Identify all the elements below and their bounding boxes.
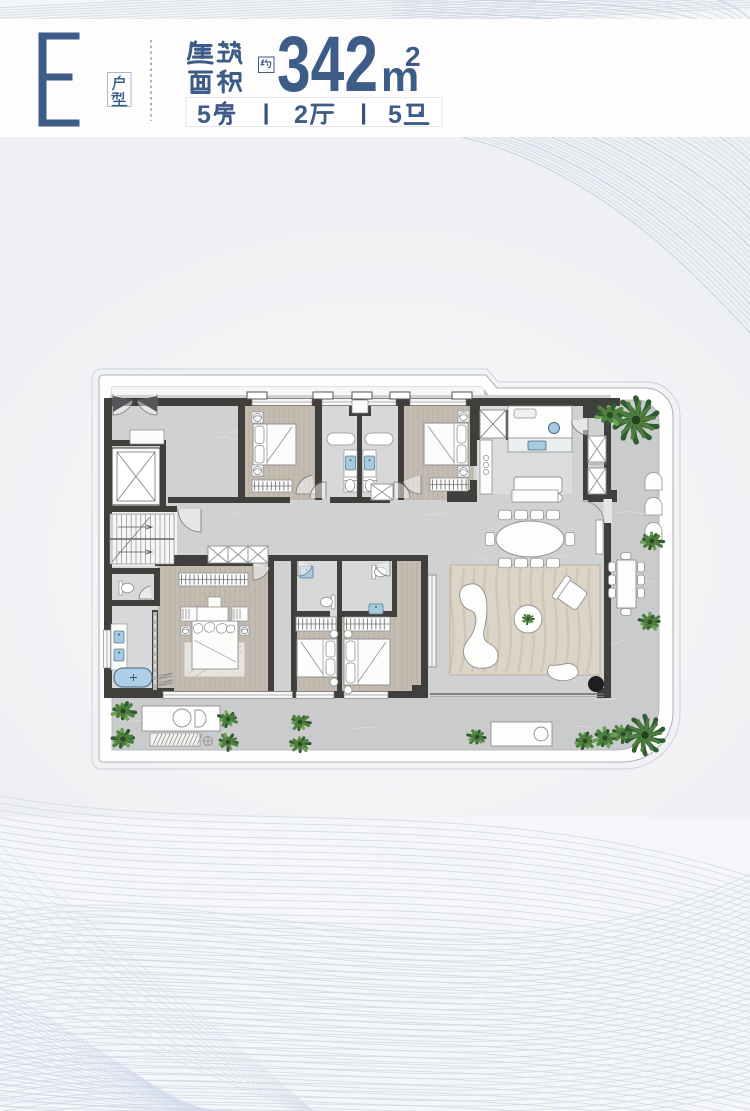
svg-text:5: 5: [388, 101, 402, 129]
svg-text:2: 2: [294, 101, 308, 129]
svg-text:342: 342: [277, 19, 378, 108]
svg-text:5: 5: [197, 101, 211, 129]
svg-text:2: 2: [405, 41, 421, 72]
